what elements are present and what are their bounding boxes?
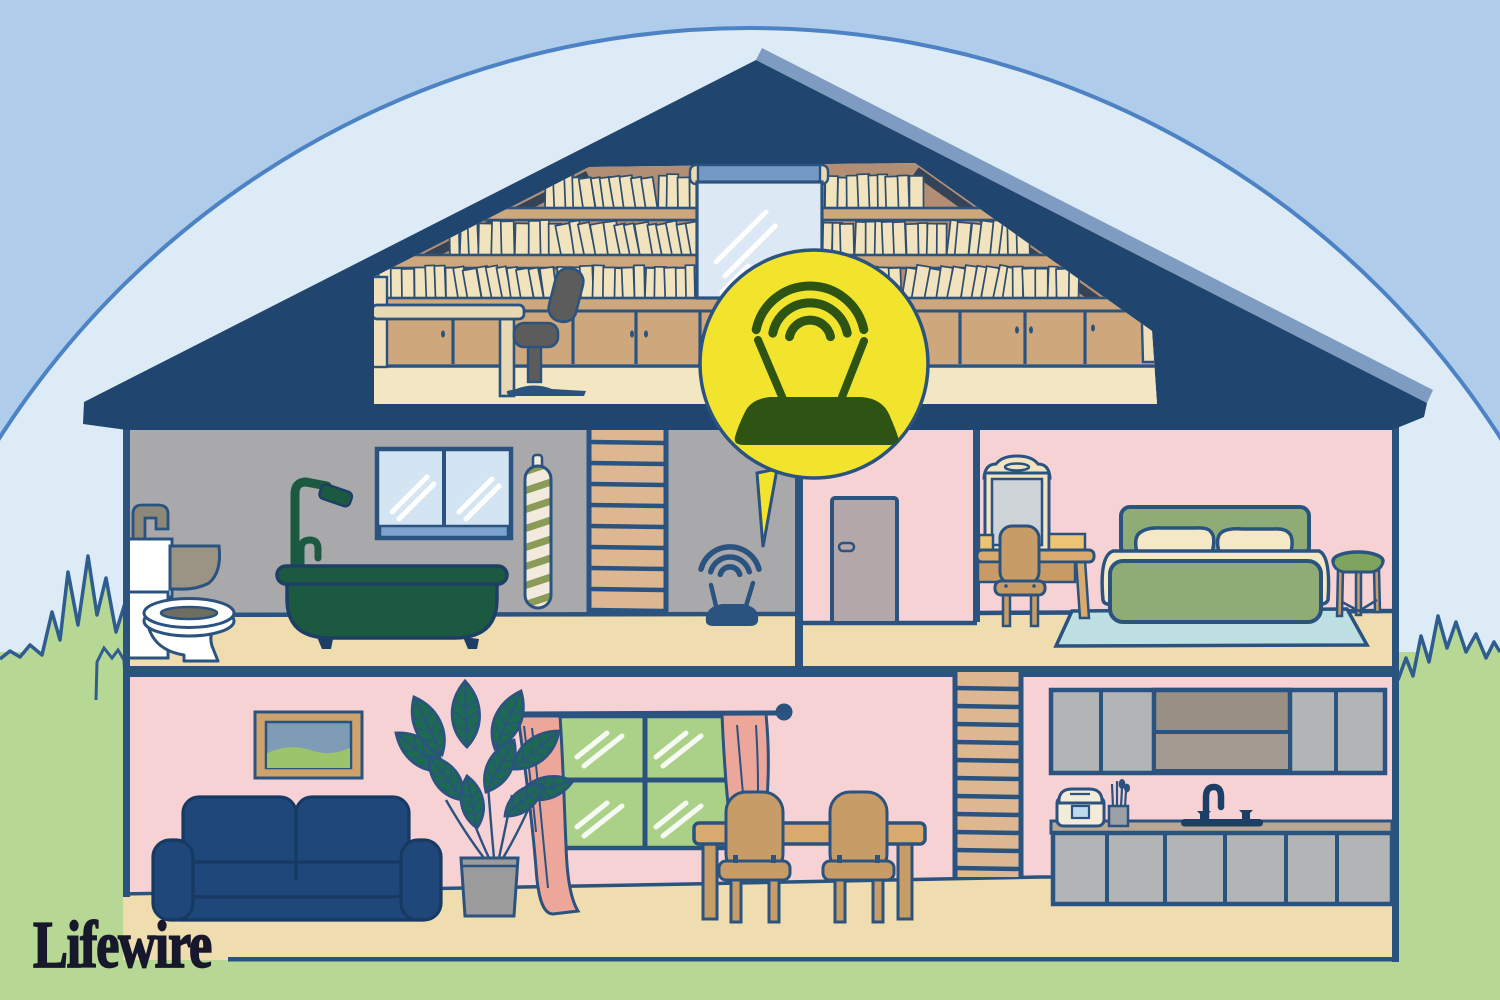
svg-text:Lifewire: Lifewire — [33, 908, 212, 983]
